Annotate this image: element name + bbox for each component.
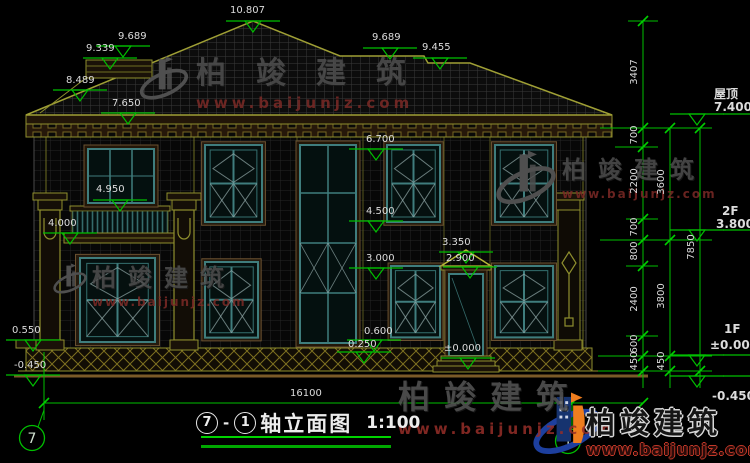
dim-inner-2200: 2200 [630, 159, 640, 203]
dim-middle-3600: 3600 [657, 160, 667, 204]
window-2f-a [202, 142, 266, 226]
dim-inner-700a: 700 [630, 113, 640, 157]
elev-ground-left: -0.450 [14, 361, 46, 371]
elev-gutter: 7.650 [112, 99, 141, 109]
elev-roof-left-ridge: 9.339 [86, 44, 115, 54]
level-f1-label: 1F [724, 323, 741, 335]
title-scale: 1:100 [366, 413, 420, 433]
dim-inner-800: 800 [630, 229, 640, 273]
title-dash: - [223, 414, 229, 432]
balcony-railing [72, 211, 168, 233]
dim-inner-2400: 2400 [630, 277, 640, 321]
elev-plinth-top: 0.250 [348, 340, 377, 350]
dim-outer-7850: 7850 [687, 225, 697, 269]
elev-win2f-sill: 4.500 [366, 207, 395, 217]
elev-roof-left-lower: 8.489 [66, 76, 95, 86]
level-f1-value: ±0.000 [710, 339, 750, 351]
elev-win2f-head: 6.700 [366, 135, 395, 145]
cornice [26, 115, 612, 137]
elev-porch-slab: 0.550 [12, 326, 41, 336]
elev-win1f-head: 3.000 [366, 254, 395, 264]
elev-balcony-door-sill: 4.950 [96, 185, 125, 195]
dim-middle-450: 450 [657, 339, 667, 383]
elev-roof-left-upper: 9.689 [118, 32, 147, 42]
title-name: 轴立面图 [260, 408, 352, 438]
elev-ridge-main: 10.807 [230, 6, 265, 16]
window-1f-a [76, 254, 160, 345]
title-axis-start: 7 [196, 412, 218, 434]
window-1f-c [388, 263, 443, 341]
cad-elevation-screenshot: 7 1 10.807 9.689 9.339 8.489 7.650 9.689… [0, 0, 750, 463]
dim-total-width: 16100 [290, 389, 322, 399]
elev-threshold: ±0.000 [444, 344, 481, 354]
elev-roof-right-lower: 9.455 [422, 43, 451, 53]
title-axis-end: 1 [234, 412, 256, 434]
level-f2-value: 3.800 [716, 218, 750, 230]
axis-bubble-left: 7 [20, 426, 45, 451]
level-f2-label: 2F [722, 205, 739, 217]
balcony-door [84, 145, 158, 207]
dim-inner-450: 450 [630, 339, 640, 383]
level-ground-value: -0.450 [712, 390, 750, 402]
elev-door-head: 2.900 [446, 254, 475, 264]
elev-pediment-top: 3.350 [442, 238, 471, 248]
window-1f-d [492, 263, 557, 341]
dim-middle-3800: 3800 [657, 274, 667, 318]
svg-text:7: 7 [28, 431, 37, 447]
title-underline [201, 436, 391, 448]
dim-inner-3407: 3407 [630, 50, 640, 94]
window-1f-b [202, 259, 261, 341]
drawing-title: 7 - 1 轴立面图 1:100 [196, 408, 420, 438]
elev-balcony-floor: 4.000 [48, 219, 77, 229]
elev-roof-right-ridge: 9.689 [372, 33, 401, 43]
plinth [26, 348, 592, 371]
level-roof-label: 屋顶 [714, 88, 738, 100]
stair-window [296, 141, 360, 347]
elev-win1f-sill: 0.600 [364, 327, 393, 337]
facade [14, 21, 648, 376]
level-roof-value: 7.400 [714, 101, 750, 113]
